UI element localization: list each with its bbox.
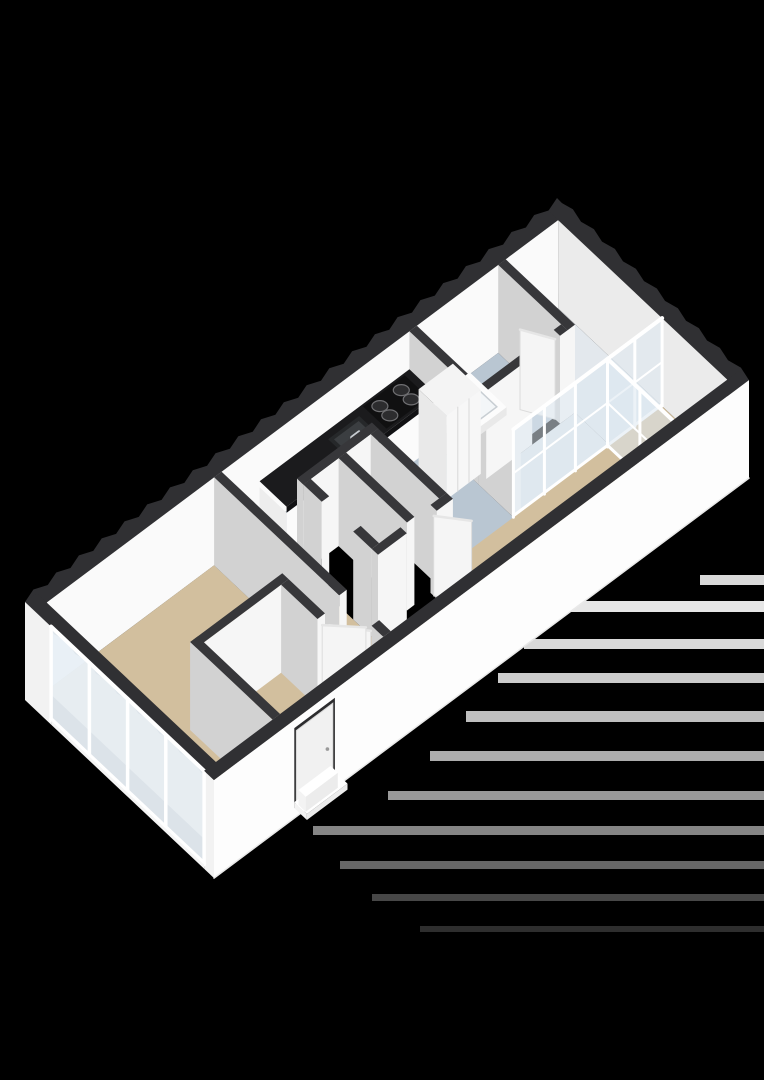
shadow-band-1 [560,601,764,612]
front-door-handle [326,747,330,751]
shadow-band-7 [313,826,764,835]
shadow-band-0 [700,575,764,585]
cooktop-burner-0 [372,401,388,412]
shadow-band-3 [498,673,764,683]
shadow-band-8 [340,861,764,869]
shadow-band-6 [388,791,764,800]
wall-wc-divider-face-se [407,517,414,611]
shadow-band-10 [420,926,764,932]
shadow-band-2 [524,639,764,649]
shadow-band-9 [372,894,764,901]
cooktop-burner-1 [382,410,398,421]
floorplan-stage [0,0,764,1080]
wall-wc-sw-b-face-sw [353,532,372,637]
shadow-band-5 [430,751,764,761]
shadow-band-4 [466,711,764,722]
cooktop-burner-2 [393,385,409,396]
floorplan-3d-render [0,0,764,1080]
cooktop-burner-3 [403,394,419,405]
